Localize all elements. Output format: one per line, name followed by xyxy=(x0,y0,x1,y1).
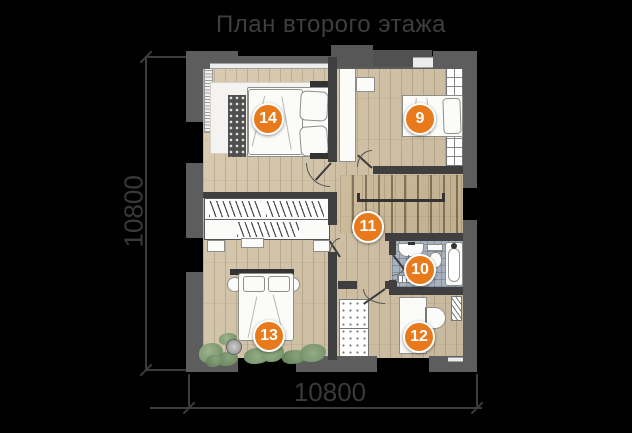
pot-plant xyxy=(226,339,242,355)
room-badge-10: 10 xyxy=(404,254,436,286)
wall-left xyxy=(186,163,203,238)
wardrobe-hangers xyxy=(209,201,261,217)
window xyxy=(413,57,433,68)
partition-wall xyxy=(338,281,357,289)
room-badge-12: 12 xyxy=(403,321,435,353)
wall-left xyxy=(186,55,203,122)
stairs-handrail xyxy=(357,199,445,202)
room-badge-13: 13 xyxy=(253,320,285,352)
partition-wall xyxy=(328,57,337,162)
tall-closet xyxy=(339,67,356,162)
window-sill xyxy=(448,357,463,362)
radiator xyxy=(451,296,462,321)
quilted-cabinet xyxy=(339,299,369,359)
room-badge-11: 11 xyxy=(352,211,384,243)
partition-wall xyxy=(373,166,463,174)
partition-wall xyxy=(203,192,333,198)
wardrobe-hangers xyxy=(266,201,324,217)
room-badge-14: 14 xyxy=(252,103,284,135)
closet xyxy=(446,136,463,166)
extension-line-bottom-left xyxy=(146,369,186,371)
partition-wall xyxy=(328,192,337,225)
closet-box xyxy=(356,77,375,92)
extension-line-br xyxy=(476,374,478,408)
toilet-tank xyxy=(427,244,443,251)
pillow xyxy=(243,276,265,292)
dimension-line-left xyxy=(145,56,147,371)
wardrobe-shelf-line xyxy=(205,219,329,220)
partition-wall xyxy=(389,287,463,295)
partition-wall xyxy=(385,281,397,289)
nightstand xyxy=(241,238,264,248)
closet xyxy=(446,66,463,96)
partition-wall xyxy=(328,252,337,360)
partition-wall xyxy=(389,241,396,255)
nightstand xyxy=(207,240,225,252)
dimension-label-bottom: 10800 xyxy=(280,377,380,408)
wall-right xyxy=(463,57,477,188)
extension-line-top-left xyxy=(146,56,186,58)
stairs-handrail-post xyxy=(442,193,445,202)
extension-line-bl xyxy=(188,374,190,408)
pillow xyxy=(442,98,461,135)
nightstand xyxy=(313,240,330,252)
wardrobe-hangers xyxy=(237,222,299,237)
bathtub-tap xyxy=(451,243,457,249)
pillow xyxy=(268,276,290,292)
cabinet-divider xyxy=(340,328,368,329)
bathtub-inner xyxy=(448,248,460,282)
bedside-runner-rug xyxy=(228,95,246,157)
page-title: План второго этажа xyxy=(176,11,486,39)
pillow xyxy=(299,90,329,121)
floor-plan-page: План второго этажа 10800 10800 xyxy=(0,0,632,433)
sink-tap xyxy=(408,242,415,245)
wall-pilaster xyxy=(331,45,373,67)
dimension-line-bottom xyxy=(150,407,482,409)
window xyxy=(210,63,328,69)
partition-wall xyxy=(385,233,463,241)
room-badge-9: 9 xyxy=(404,103,436,135)
stairs-handrail-post xyxy=(357,193,360,202)
wall-right xyxy=(463,220,477,372)
